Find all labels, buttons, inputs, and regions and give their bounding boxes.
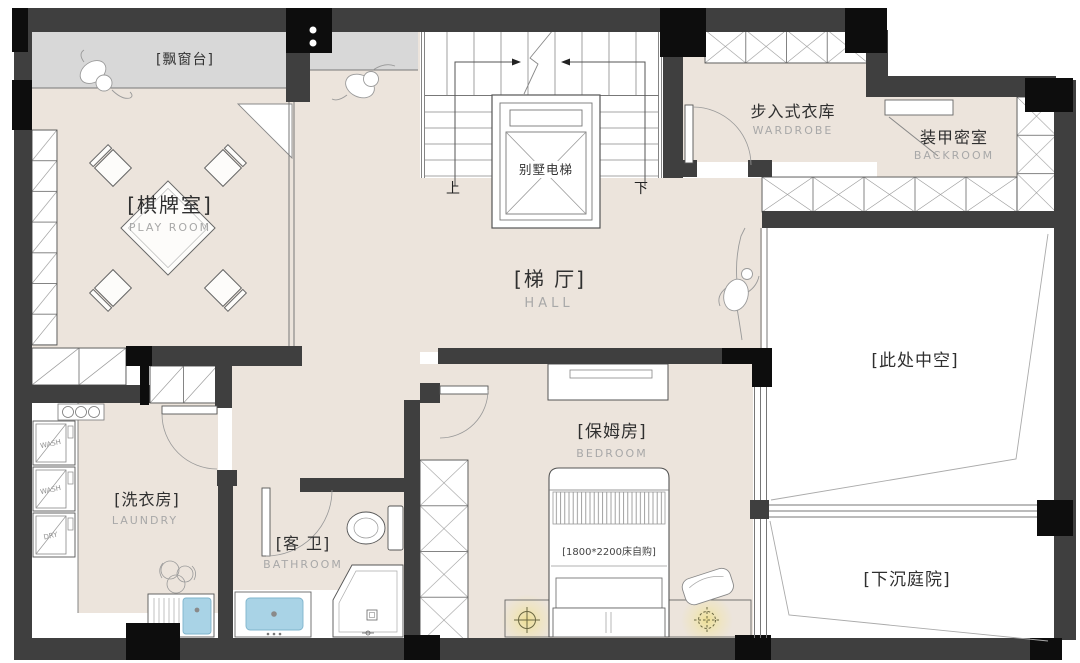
wardrobe-sublabel: WARDROBE — [753, 124, 834, 137]
column — [126, 623, 180, 660]
wall-stair-wardrobe — [663, 53, 683, 178]
wall-bathroom-door-pier — [217, 470, 237, 486]
detergent-shelf — [58, 404, 104, 420]
bed-pillow-band — [553, 492, 665, 524]
playroom-side-cabinet — [32, 130, 57, 345]
column — [1030, 638, 1062, 660]
faucet — [271, 611, 277, 617]
playroom-bottom-cabinet — [32, 348, 126, 385]
backroom-label: 装甲密室 — [920, 128, 988, 147]
window-bedroom-void — [755, 387, 767, 500]
bed-note: [1800*2200床自购] — [562, 545, 656, 558]
laundry-entry-cabinet — [150, 366, 217, 403]
window-bedroom-courtyard — [755, 519, 767, 638]
south-corridor-floor — [232, 352, 420, 490]
wall-hall-bedroom — [438, 348, 762, 364]
wall-top — [14, 8, 663, 32]
laundry-label: [洗衣房] — [114, 490, 180, 509]
elevator-label: 别墅电梯 — [519, 162, 573, 177]
bay-window-label: [飘窗台] — [156, 51, 214, 68]
column — [140, 363, 149, 405]
bedroom-desk — [548, 364, 668, 400]
wall-right — [1054, 80, 1076, 640]
bedroom-sublabel: BEDROOM — [576, 447, 647, 460]
playroom-sublabel: PLAY ROOM — [129, 221, 211, 234]
nightstand-right — [669, 600, 751, 637]
column — [845, 8, 887, 53]
wall-wardrobe-top — [698, 8, 847, 32]
floor-plan: 别墅电梯 [1800*2200床自购] — [0, 0, 1080, 663]
wardrobe-top-cabinet — [705, 30, 868, 63]
courtyard-label: [下沉庭院] — [863, 570, 950, 590]
backroom-side-cabinet — [1017, 97, 1056, 212]
backroom-sublabel: BACKROOM — [914, 149, 994, 162]
wall-bay-junction — [286, 53, 310, 102]
wardrobe-bottom-cabinet — [762, 177, 1017, 212]
bedroom-label: [保姆房] — [577, 422, 646, 442]
wall-bedroom-door-pier — [420, 383, 440, 403]
elevator: 别墅电梯 — [492, 95, 600, 228]
column — [286, 8, 332, 53]
wall-laundry-pier — [215, 355, 232, 408]
sink-basin — [183, 598, 211, 634]
column — [752, 348, 772, 387]
column — [1025, 78, 1073, 112]
bathroom-label: [客 卫] — [276, 534, 331, 553]
void-label: [此处中空] — [871, 351, 958, 371]
wall-window-pier — [750, 500, 769, 519]
bathroom-sublabel: BATHROOM — [263, 558, 343, 571]
wall-laundry-bath — [218, 470, 233, 640]
wall-wardrobe-bottom-right — [748, 160, 772, 177]
dryer: DRY — [33, 513, 75, 557]
column — [1037, 500, 1073, 536]
hall-sublabel: HALL — [524, 296, 573, 311]
vanity — [235, 592, 311, 637]
stairs-up-label: 上 — [446, 181, 460, 197]
bed-footboard — [553, 608, 665, 637]
hall-label: [梯 厅] — [514, 267, 586, 291]
column — [404, 635, 440, 660]
washing-machine-2: WASH — [33, 467, 75, 511]
wall-bathroom-top — [300, 478, 405, 492]
wall-laundry-top — [14, 385, 150, 403]
column — [12, 80, 32, 130]
wall-bath-bedroom — [404, 400, 420, 640]
wall-under-cabinet — [762, 211, 1073, 228]
wardrobe-label: 步入式衣库 — [750, 102, 835, 121]
laundry-sublabel: LAUNDRY — [112, 514, 178, 527]
column — [12, 8, 28, 52]
playroom-label: [棋牌室] — [127, 193, 213, 217]
column — [735, 635, 771, 660]
washing-machine-1: WASH — [33, 421, 75, 465]
column — [660, 8, 706, 57]
bed: [1800*2200床自购] — [549, 468, 669, 637]
stairs-down-label: 下 — [634, 181, 648, 197]
faucet — [195, 608, 200, 613]
bedroom-wardrobe-cabinet — [420, 460, 468, 643]
window-void-courtyard — [769, 505, 1037, 517]
floor-plan-canvas: 别墅电梯 [1800*2200床自购] — [0, 0, 1080, 663]
wall-playroom-bottom — [126, 346, 302, 366]
